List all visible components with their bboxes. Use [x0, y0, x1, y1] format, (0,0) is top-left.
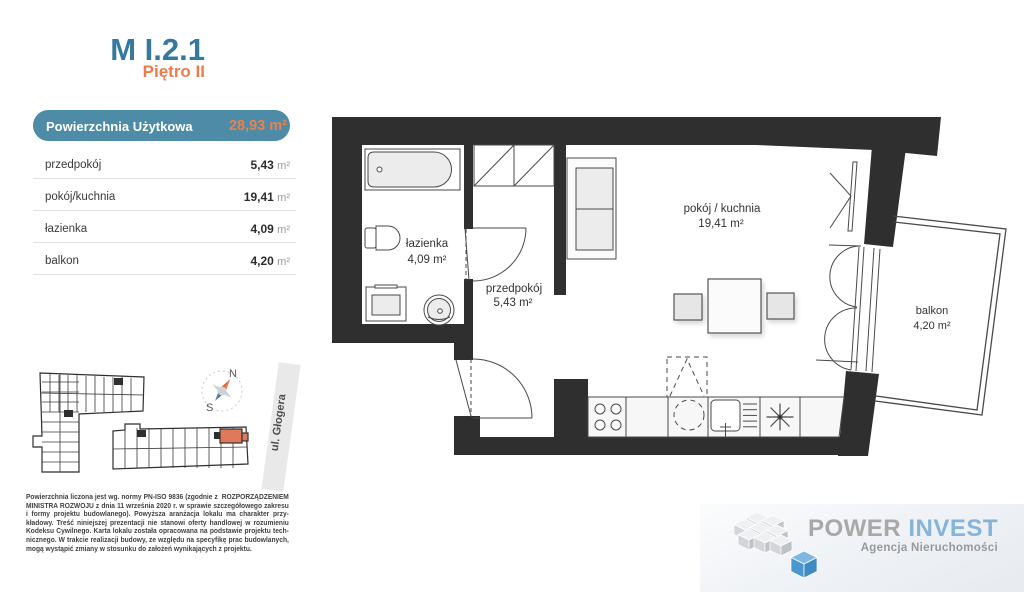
svg-text:łazienka: łazienka: [406, 238, 449, 250]
svg-text:balkon: balkon: [916, 305, 948, 317]
svg-text:N: N: [229, 368, 237, 380]
svg-text:4,09 m²: 4,09 m²: [408, 254, 447, 266]
svg-text:5,43 m²: 5,43 m²: [494, 297, 533, 309]
svg-text:S: S: [206, 402, 213, 414]
svg-text:19,41 m²: 19,41 m²: [698, 218, 744, 230]
svg-text:pokój / kuchnia: pokój / kuchnia: [684, 203, 761, 215]
svg-text:przedpokój: przedpokój: [486, 283, 542, 295]
svg-text:4,20 m²: 4,20 m²: [913, 320, 951, 332]
